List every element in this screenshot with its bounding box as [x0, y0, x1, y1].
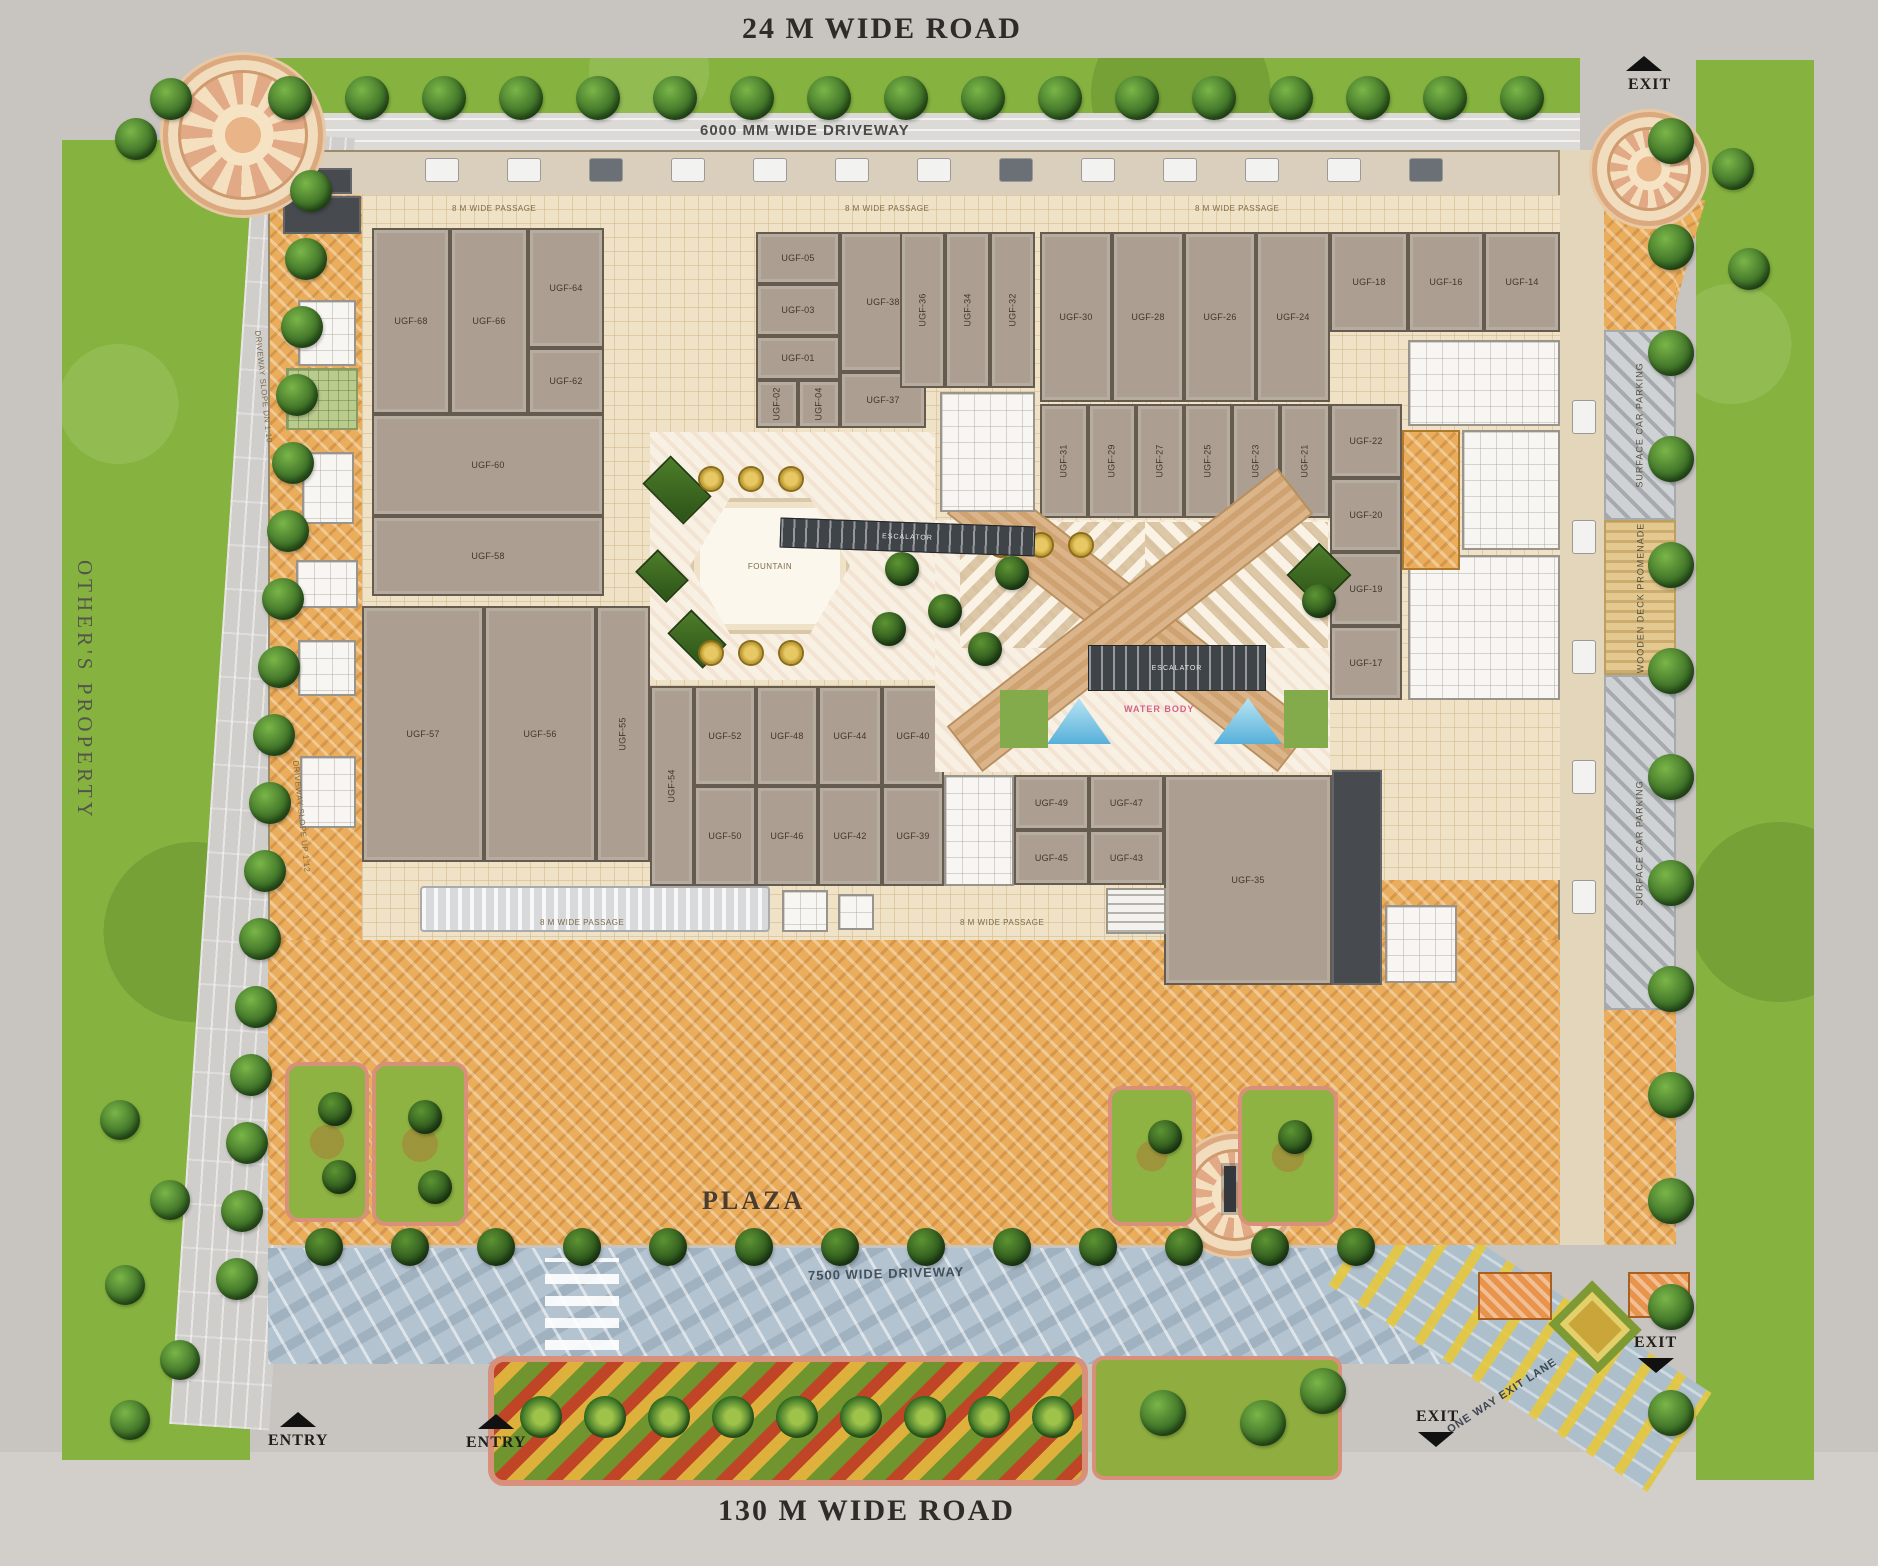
- tree: [1115, 76, 1159, 120]
- paving-medallion: [740, 468, 762, 490]
- tree: [1648, 1178, 1694, 1224]
- tree: [244, 850, 286, 892]
- retail-unit-label: UGF-47: [1110, 798, 1143, 808]
- tree: [318, 1092, 352, 1126]
- retail-unit: UGF-19: [1330, 552, 1402, 626]
- pavilion-a: [782, 890, 828, 932]
- parked-car: [1572, 640, 1596, 674]
- retail-unit-label: UGF-32: [1008, 293, 1018, 326]
- retail-unit-label: UGF-42: [833, 831, 866, 841]
- tree: [1648, 648, 1694, 694]
- retail-unit-label: UGF-02: [772, 387, 782, 420]
- paving-medallion: [740, 642, 762, 664]
- deck-strip-right-label: WOODEN DECK PROMENADE: [1635, 522, 1645, 673]
- tree: [1278, 1120, 1312, 1154]
- exit-arrow-bottom-1: [1418, 1432, 1454, 1447]
- parked-car: [1163, 158, 1197, 182]
- service-room: [1408, 340, 1560, 426]
- parked-car: [1572, 400, 1596, 434]
- tree: [1300, 1368, 1346, 1414]
- retail-unit: UGF-25: [1184, 404, 1232, 518]
- retail-unit: UGF-32: [990, 232, 1035, 388]
- parked-car: [1572, 880, 1596, 914]
- tree: [1251, 1228, 1289, 1266]
- tree: [807, 76, 851, 120]
- service-block-dark: [1332, 770, 1382, 985]
- retail-unit-label: UGF-52: [708, 731, 741, 741]
- service-room: [1462, 430, 1560, 550]
- retail-unit-label: UGF-40: [896, 731, 929, 741]
- escalator-lower: ESCALATOR: [1088, 645, 1266, 691]
- site-plan-canvas: UGF-68UGF-66UGF-64UGF-62UGF-60UGF-58UGF-…: [0, 0, 1878, 1566]
- plaza-obelisk: [1224, 1166, 1236, 1212]
- tree: [993, 1228, 1031, 1266]
- service-room: [1408, 555, 1560, 700]
- retail-unit-label: UGF-46: [770, 831, 803, 841]
- tree: [115, 118, 157, 160]
- retail-unit-label: UGF-58: [471, 551, 504, 561]
- tree: [477, 1228, 515, 1266]
- paving-medallion: [700, 468, 722, 490]
- tree: [422, 76, 466, 120]
- paving-medallion: [780, 642, 802, 664]
- palm-tree: [840, 1396, 882, 1438]
- tree: [730, 76, 774, 120]
- kiosk-bottom-a: [1478, 1272, 1552, 1320]
- palm-tree: [648, 1396, 690, 1438]
- tree: [1728, 248, 1770, 290]
- retail-unit: UGF-50: [694, 786, 756, 886]
- retail-unit: UGF-27: [1136, 404, 1184, 518]
- retail-unit-label: UGF-64: [549, 283, 582, 293]
- retail-unit: UGF-30: [1040, 232, 1112, 402]
- retail-unit: UGF-14: [1484, 232, 1560, 332]
- ramp-band-right: [1402, 430, 1460, 570]
- retail-unit: UGF-44: [818, 686, 882, 786]
- tree: [576, 76, 620, 120]
- tree: [649, 1228, 687, 1266]
- parked-car: [999, 158, 1033, 182]
- island-c: [1108, 1086, 1196, 1226]
- tree: [160, 1340, 200, 1380]
- tree: [884, 76, 928, 120]
- retail-unit-label: UGF-29: [1107, 444, 1117, 477]
- retail-unit-label: UGF-17: [1349, 658, 1382, 668]
- retail-unit: UGF-42: [818, 786, 882, 886]
- tree: [305, 1228, 343, 1266]
- retail-unit: UGF-35: [1164, 775, 1332, 985]
- retail-unit-label: UGF-36: [918, 293, 928, 326]
- exit-arrow-top-right: [1626, 56, 1662, 71]
- palm-tree: [1032, 1396, 1074, 1438]
- tree: [653, 76, 697, 120]
- retail-unit: UGF-05: [756, 232, 840, 284]
- tree: [1648, 966, 1694, 1012]
- retail-unit: UGF-26: [1184, 232, 1256, 402]
- service-room: [1385, 905, 1457, 983]
- parked-car: [753, 158, 787, 182]
- retail-unit: UGF-43: [1089, 830, 1164, 885]
- tree: [1648, 224, 1694, 270]
- service-room: [296, 560, 358, 608]
- retail-unit: UGF-56: [484, 606, 596, 862]
- exit-arrow-bottom-2: [1638, 1358, 1674, 1373]
- retail-unit-label: UGF-38: [866, 297, 899, 307]
- tree: [1648, 1284, 1694, 1330]
- tree: [1648, 436, 1694, 482]
- retail-unit: UGF-34: [945, 232, 990, 388]
- tree: [1165, 1228, 1203, 1266]
- retail-unit-label: UGF-48: [770, 731, 803, 741]
- retail-unit-label: UGF-56: [523, 729, 556, 739]
- parking-strip-right-lower: SURFACE CAR PARKING: [1604, 675, 1676, 1010]
- parked-car: [1572, 760, 1596, 794]
- retail-unit: UGF-48: [756, 686, 818, 786]
- parked-car: [1245, 158, 1279, 182]
- retail-unit: UGF-52: [694, 686, 756, 786]
- retail-unit: UGF-29: [1088, 404, 1136, 518]
- pedestrian-crossing: [545, 1258, 619, 1350]
- retail-unit: UGF-04: [798, 380, 840, 428]
- passage-label-3: 8 M WIDE PASSAGE: [1195, 204, 1279, 213]
- island-d: [1238, 1086, 1338, 1226]
- tree: [1079, 1228, 1117, 1266]
- tree: [1148, 1120, 1182, 1154]
- tree: [1648, 1390, 1694, 1436]
- paving-medallion: [1070, 534, 1092, 556]
- tree: [968, 632, 1002, 666]
- retail-unit-label: UGF-18: [1352, 277, 1385, 287]
- retail-unit-label: UGF-04: [814, 387, 824, 420]
- tree: [1140, 1390, 1186, 1436]
- retail-unit-label: UGF-50: [708, 831, 741, 841]
- tree: [1648, 118, 1694, 164]
- retail-unit: UGF-17: [1330, 626, 1402, 700]
- tree: [105, 1265, 145, 1305]
- entry-arrow-2: [478, 1414, 514, 1429]
- retail-unit-label: UGF-45: [1035, 853, 1068, 863]
- tree: [907, 1228, 945, 1266]
- retail-unit: UGF-47: [1089, 775, 1164, 830]
- fountain-label: FOUNTAIN: [748, 562, 792, 571]
- tree: [230, 1054, 272, 1096]
- tree: [150, 78, 192, 120]
- tree: [258, 646, 300, 688]
- tree: [290, 170, 332, 212]
- tree: [735, 1228, 773, 1266]
- tree: [391, 1228, 429, 1266]
- tree: [1712, 148, 1754, 190]
- tree: [1648, 754, 1694, 800]
- retail-unit-label: UGF-26: [1203, 312, 1236, 322]
- tree: [1648, 542, 1694, 588]
- tree: [345, 76, 389, 120]
- retail-unit: UGF-55: [596, 606, 650, 862]
- tree: [253, 714, 295, 756]
- tree: [499, 76, 543, 120]
- tree: [100, 1100, 140, 1140]
- retail-unit-label: UGF-23: [1251, 444, 1261, 477]
- entry-label-1: ENTRY: [268, 1432, 328, 1450]
- tree: [821, 1228, 859, 1266]
- retail-unit: UGF-57: [362, 606, 484, 862]
- tree: [961, 76, 1005, 120]
- walkway-right-edge: [1560, 150, 1604, 1245]
- water-label: WATER BODY: [1124, 704, 1194, 714]
- retail-unit-label: UGF-34: [963, 293, 973, 326]
- retail-unit-label: UGF-24: [1276, 312, 1309, 322]
- retail-unit-label: UGF-30: [1059, 312, 1092, 322]
- tree: [885, 552, 919, 586]
- plaza-stairs: [1106, 888, 1166, 934]
- retail-unit: UGF-24: [1256, 232, 1330, 402]
- retail-unit: UGF-31: [1040, 404, 1088, 518]
- retail-unit-label: UGF-20: [1349, 510, 1382, 520]
- retail-unit: UGF-28: [1112, 232, 1184, 402]
- retail-unit: UGF-45: [1014, 830, 1089, 885]
- tree: [408, 1100, 442, 1134]
- retail-unit-label: UGF-49: [1035, 798, 1068, 808]
- tree: [281, 306, 323, 348]
- retail-unit-label: UGF-55: [618, 717, 628, 750]
- tree: [1269, 76, 1313, 120]
- retail-unit: UGF-39: [882, 786, 944, 886]
- parked-car: [425, 158, 459, 182]
- exit-label-bottom-1: EXIT: [1416, 1408, 1459, 1426]
- parking-strip-right-upper-label: SURFACE CAR PARKING: [1635, 362, 1645, 487]
- tree: [276, 374, 318, 416]
- entry-arrow-1: [280, 1412, 316, 1427]
- tree: [563, 1228, 601, 1266]
- parking-strip-top: [270, 152, 1558, 195]
- tree: [1302, 584, 1336, 618]
- service-room: [940, 392, 1035, 512]
- retail-unit: UGF-36: [900, 232, 945, 388]
- palm-tree: [712, 1396, 754, 1438]
- tree: [110, 1400, 150, 1440]
- retail-unit: UGF-49: [1014, 775, 1089, 830]
- plaza-label: PLAZA: [702, 1186, 805, 1216]
- retail-unit: UGF-01: [756, 336, 840, 380]
- parked-car: [507, 158, 541, 182]
- retail-unit-label: UGF-01: [781, 353, 814, 363]
- retail-unit: UGF-03: [756, 284, 840, 336]
- retail-unit-label: UGF-31: [1059, 444, 1069, 477]
- top-driveway-label: 6000 MM WIDE DRIVEWAY: [700, 122, 910, 139]
- parked-car: [917, 158, 951, 182]
- tree: [322, 1160, 356, 1194]
- retail-unit: UGF-58: [372, 516, 604, 596]
- palm-tree: [968, 1396, 1010, 1438]
- palm-tree: [776, 1396, 818, 1438]
- retail-unit: UGF-02: [756, 380, 798, 428]
- garden-lawn-right: [1092, 1356, 1342, 1480]
- palm-tree: [904, 1396, 946, 1438]
- retail-unit: UGF-62: [528, 348, 604, 414]
- entry-label-2: ENTRY: [466, 1434, 526, 1452]
- tree: [272, 442, 314, 484]
- service-room: [300, 756, 356, 828]
- parking-strip-right-lower-label: SURFACE CAR PARKING: [1635, 780, 1645, 905]
- retail-unit-label: UGF-57: [406, 729, 439, 739]
- palm-tree: [584, 1396, 626, 1438]
- tree: [995, 556, 1029, 590]
- courtyard-lawn-right: [1284, 690, 1328, 748]
- retail-unit: UGF-20: [1330, 478, 1402, 552]
- parked-car: [835, 158, 869, 182]
- tree: [418, 1170, 452, 1204]
- parked-car: [589, 158, 623, 182]
- paving-medallion: [780, 468, 802, 490]
- tree: [1648, 1072, 1694, 1118]
- escalator-lower-label: ESCALATOR: [1152, 665, 1203, 672]
- retail-unit-label: UGF-19: [1349, 584, 1382, 594]
- palm-tree: [520, 1396, 562, 1438]
- retail-unit-label: UGF-37: [866, 395, 899, 405]
- retail-unit-label: UGF-03: [781, 305, 814, 315]
- exit-label-top-right: EXIT: [1628, 76, 1671, 94]
- retail-unit-label: UGF-28: [1131, 312, 1164, 322]
- retail-unit: UGF-16: [1408, 232, 1484, 332]
- tree: [1192, 76, 1236, 120]
- passage-label-4: 8 M WIDE PASSAGE: [540, 918, 624, 927]
- tree: [928, 594, 962, 628]
- retail-unit-label: UGF-16: [1429, 277, 1462, 287]
- tree: [1240, 1400, 1286, 1446]
- bottom-road-label: 130 M WIDE ROAD: [718, 1494, 1015, 1528]
- passage-label-2: 8 M WIDE PASSAGE: [845, 204, 929, 213]
- retail-unit-label: UGF-43: [1110, 853, 1143, 863]
- retail-unit-label: UGF-66: [472, 316, 505, 326]
- tree: [1648, 860, 1694, 906]
- tree: [249, 782, 291, 824]
- tree: [226, 1122, 268, 1164]
- escalator-upper-label: ESCALATOR: [882, 533, 933, 542]
- retail-unit-label: UGF-21: [1300, 444, 1310, 477]
- retail-unit-label: UGF-44: [833, 731, 866, 741]
- retail-unit-label: UGF-14: [1505, 277, 1538, 287]
- retail-unit: UGF-46: [756, 786, 818, 886]
- retail-unit-label: UGF-27: [1155, 444, 1165, 477]
- retail-unit-label: UGF-39: [896, 831, 929, 841]
- others-property-label: OTHER'S PROPERTY: [72, 560, 97, 821]
- courtyard-lawn-left: [1000, 690, 1048, 748]
- retail-unit-label: UGF-25: [1203, 444, 1213, 477]
- passage-label-1: 8 M WIDE PASSAGE: [452, 204, 536, 213]
- retail-unit: UGF-18: [1330, 232, 1408, 332]
- tree: [1038, 76, 1082, 120]
- retail-unit-label: UGF-05: [781, 253, 814, 263]
- retail-unit-label: UGF-62: [549, 376, 582, 386]
- tree: [267, 510, 309, 552]
- tree: [1423, 76, 1467, 120]
- passage-label-5: 8 M WIDE PASSAGE: [960, 918, 1044, 927]
- top-road-label: 24 M WIDE ROAD: [742, 12, 1022, 46]
- tree: [150, 1180, 190, 1220]
- island-a: [285, 1062, 369, 1222]
- tree: [1500, 76, 1544, 120]
- retail-unit: UGF-60: [372, 414, 604, 516]
- island-b: [372, 1062, 468, 1226]
- retail-unit: UGF-64: [528, 228, 604, 348]
- tree: [1337, 1228, 1375, 1266]
- retail-unit-label: UGF-22: [1349, 436, 1382, 446]
- service-room: [298, 640, 356, 696]
- parked-car: [1572, 520, 1596, 554]
- tree: [221, 1190, 263, 1232]
- pavilion-b: [838, 894, 874, 930]
- tree: [1346, 76, 1390, 120]
- retail-unit-label: UGF-54: [667, 769, 677, 802]
- paving-medallion: [700, 642, 722, 664]
- retail-unit: UGF-68: [372, 228, 450, 414]
- tree: [872, 612, 906, 646]
- retail-unit-label: UGF-35: [1231, 875, 1264, 885]
- retail-unit: UGF-66: [450, 228, 528, 414]
- retail-unit: UGF-54: [650, 686, 694, 886]
- tree: [1648, 330, 1694, 376]
- parked-car: [671, 158, 705, 182]
- retail-unit-label: UGF-60: [471, 460, 504, 470]
- retail-unit-label: UGF-68: [394, 316, 427, 326]
- exit-label-bottom-2: EXIT: [1634, 1334, 1677, 1352]
- bottom-driveway: [268, 1248, 1460, 1364]
- tree: [268, 76, 312, 120]
- parked-car: [1327, 158, 1361, 182]
- retail-unit: UGF-22: [1330, 404, 1402, 478]
- parked-car: [1409, 158, 1443, 182]
- parked-car: [1081, 158, 1115, 182]
- tree: [235, 986, 277, 1028]
- service-room: [944, 775, 1014, 886]
